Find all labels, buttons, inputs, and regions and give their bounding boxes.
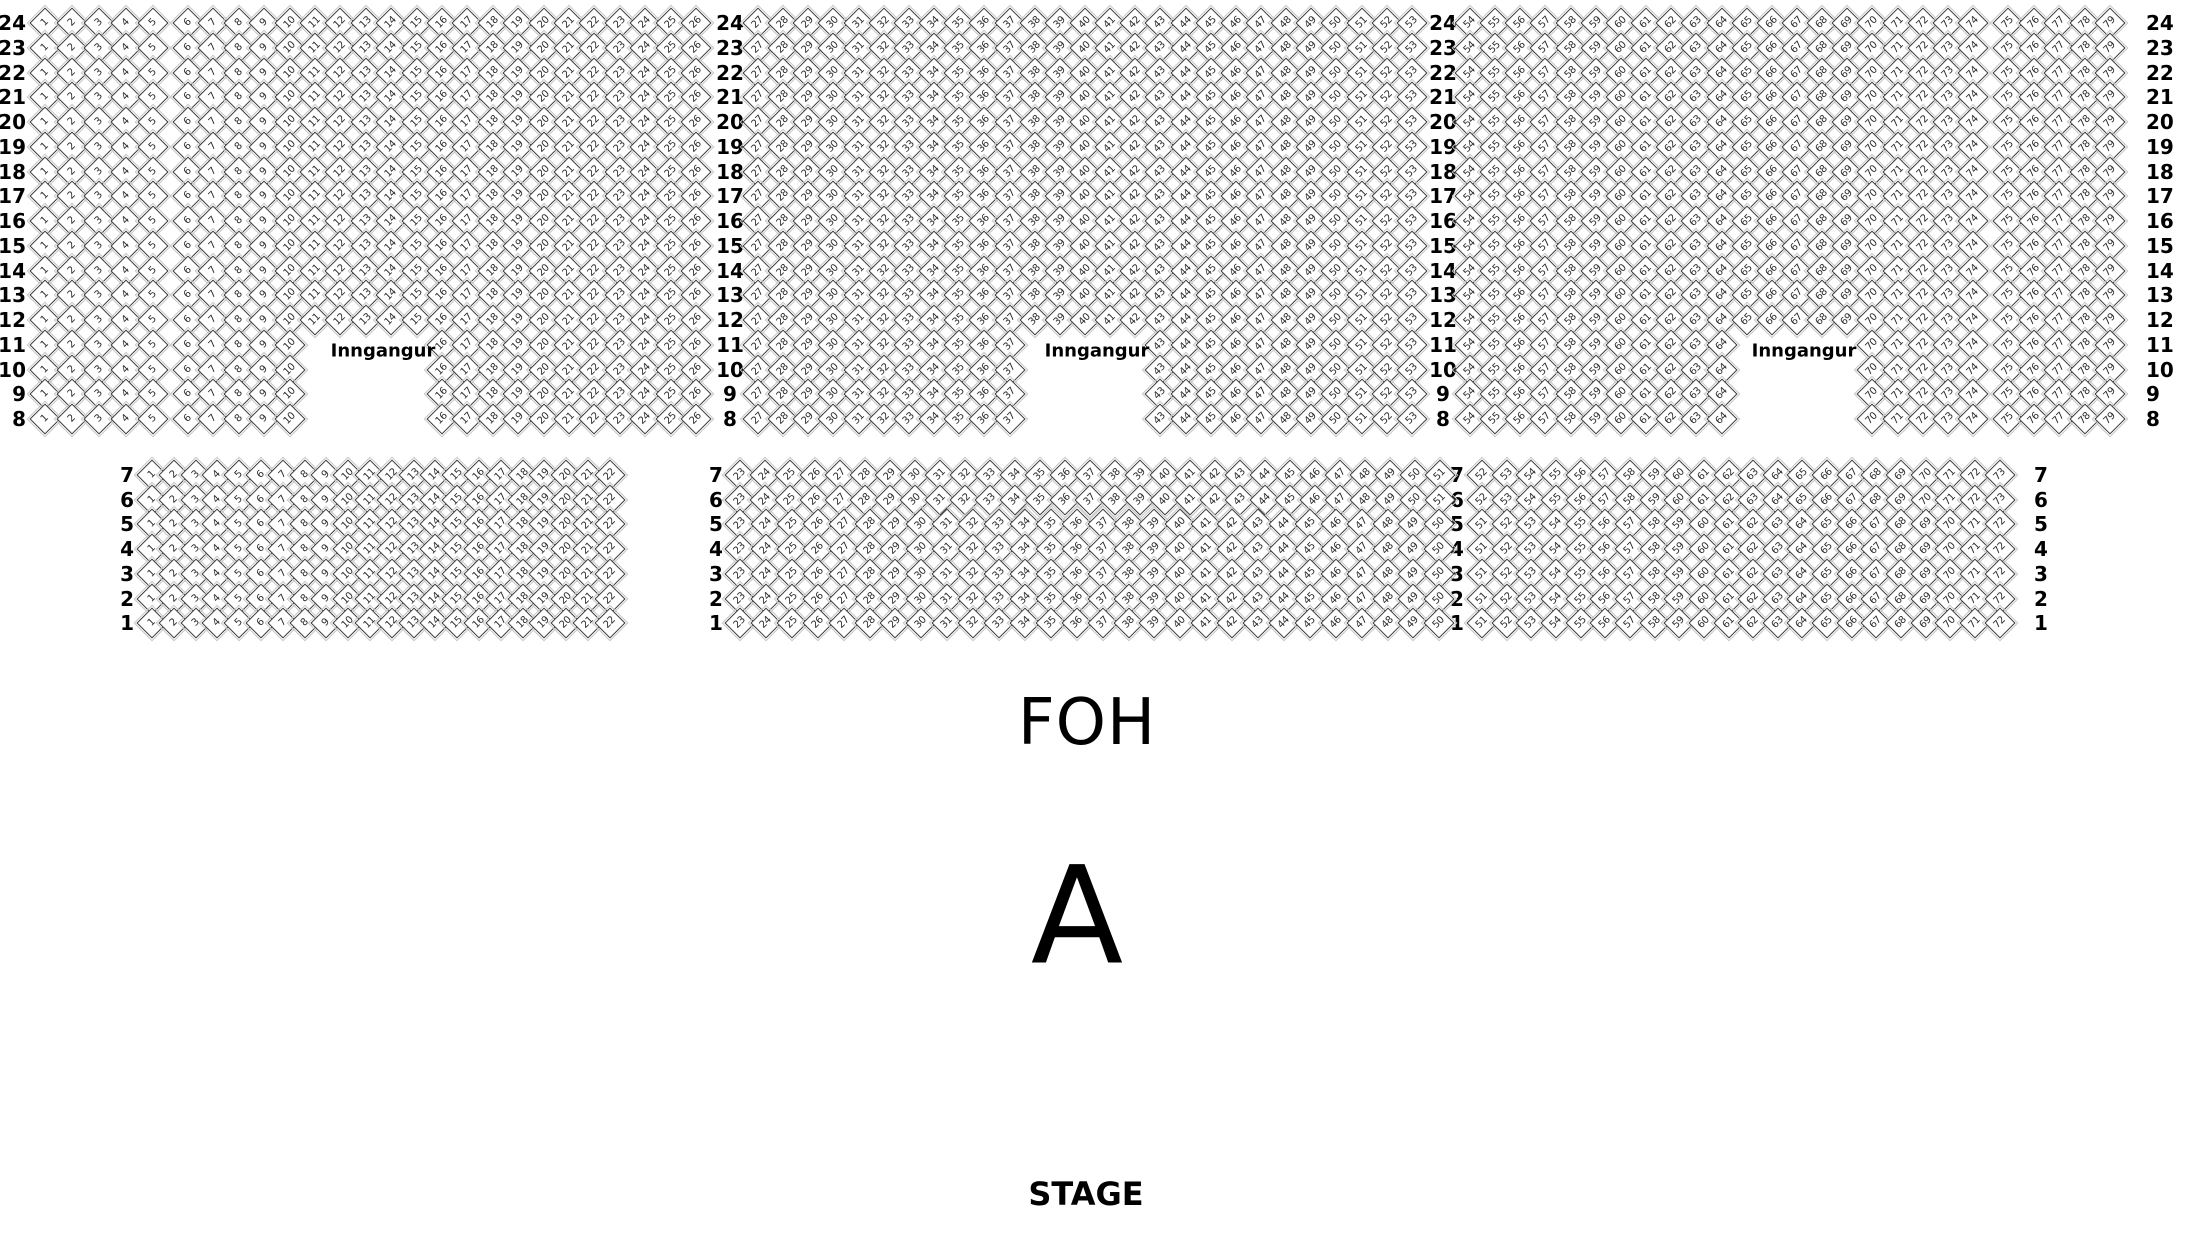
seat-number: 54	[1462, 114, 1477, 129]
seat-number: 8	[233, 265, 244, 276]
seat-number: 64	[1714, 411, 1729, 426]
seat-number: 25	[663, 164, 678, 179]
seat-number: 44	[1178, 238, 1193, 253]
seat-number: 35	[1032, 492, 1047, 507]
seat-number: 70	[1918, 492, 1933, 507]
seat-number: 2	[168, 494, 179, 505]
seat-number: 33	[901, 288, 916, 303]
seat-number: 2	[66, 166, 77, 177]
seat[interactable]: 10	[274, 403, 305, 434]
seat-number: 69	[1840, 114, 1855, 129]
seat-number: 66	[1764, 90, 1779, 105]
seat-number: 54	[1548, 541, 1563, 556]
seat-number: 66	[1764, 238, 1779, 253]
seat-number: 50	[1432, 517, 1447, 532]
seat-number: 35	[951, 387, 966, 402]
seat-number: 56	[1513, 114, 1528, 129]
seat-number: 11	[362, 517, 377, 532]
seat-number: 70	[1865, 387, 1880, 402]
seat-number: 45	[1302, 541, 1317, 556]
seat-number: 56	[1513, 65, 1528, 80]
seat-number: 49	[1382, 467, 1397, 482]
seat-number: 7	[208, 92, 219, 103]
seat-number: 31	[851, 362, 866, 377]
seat[interactable]: 5	[137, 403, 168, 434]
seat-number: 20	[536, 40, 551, 55]
seat-number: 48	[1278, 411, 1293, 426]
seat-number: 25	[663, 362, 678, 377]
seat-number: 53	[1404, 164, 1419, 179]
seat-number: 25	[663, 213, 678, 228]
seat-number: 21	[561, 238, 576, 253]
seat-number: 44	[1276, 591, 1291, 606]
seat-number: 56	[1513, 362, 1528, 377]
seat-number: 4	[212, 568, 223, 579]
seat-number: 69	[1893, 467, 1908, 482]
seat-number: 70	[1865, 90, 1880, 105]
seat-number: 21	[561, 139, 576, 154]
seat-number: 63	[1745, 492, 1760, 507]
seat-number: 54	[1548, 591, 1563, 606]
seat-number: 19	[510, 411, 525, 426]
seat-number: 5	[147, 67, 158, 78]
seat-number: 40	[1077, 312, 1092, 327]
seat-number: 52	[1499, 566, 1514, 581]
seat-number: 70	[1865, 288, 1880, 303]
seat[interactable]: 53	[1396, 403, 1427, 434]
seat-number: 20	[536, 15, 551, 30]
seat-number: 10	[282, 40, 297, 55]
seat[interactable]: 37	[994, 403, 1025, 434]
seat-number: 49	[1304, 213, 1319, 228]
seat-number: 19	[510, 139, 525, 154]
seat-number: 9	[259, 215, 270, 226]
seat[interactable]: 64	[1706, 403, 1737, 434]
seat-number: 48	[1278, 189, 1293, 204]
seat-number: 72	[1915, 312, 1930, 327]
seat-number: 69	[1840, 213, 1855, 228]
seat-number: 8	[233, 141, 244, 152]
seat-number: 47	[1253, 362, 1268, 377]
seat-number: 32	[876, 65, 891, 80]
seat-number: 65	[1739, 238, 1754, 253]
seat-number: 29	[882, 467, 897, 482]
seat-number: 44	[1276, 566, 1291, 581]
seat-number: 66	[1764, 263, 1779, 278]
seat-number: 26	[688, 164, 703, 179]
seat-number: 57	[1538, 90, 1553, 105]
seat-number: 6	[182, 17, 193, 28]
seat-number: 51	[1354, 288, 1369, 303]
seat-number: 10	[282, 65, 297, 80]
seat-number: 20	[536, 288, 551, 303]
seat-number: 12	[333, 164, 348, 179]
seat-number: 56	[1598, 566, 1613, 581]
seat-number: 52	[1379, 288, 1394, 303]
seat-number: 42	[1207, 467, 1222, 482]
seat-number: 60	[1613, 362, 1628, 377]
seat-number: 70	[1865, 362, 1880, 377]
seat-number: 8	[233, 339, 244, 350]
seat-number: 59	[1588, 189, 1603, 204]
seat-number: 23	[612, 139, 627, 154]
seat-number: 69	[1840, 40, 1855, 55]
seat-number: 10	[282, 139, 297, 154]
seat-number: 67	[1844, 492, 1859, 507]
seat-number: 62	[1663, 213, 1678, 228]
seat-number: 58	[1563, 213, 1578, 228]
row-label: 24	[716, 11, 744, 35]
seat-number: 71	[1890, 312, 1905, 327]
seat-number: 64	[1714, 40, 1729, 55]
seat-number: 22	[587, 312, 602, 327]
seat-number: 25	[663, 40, 678, 55]
seat-number: 68	[1814, 312, 1829, 327]
seat-number: 73	[1940, 411, 1955, 426]
seat-number: 34	[926, 164, 941, 179]
seat-number: 27	[836, 541, 851, 556]
seat-number: 20	[536, 90, 551, 105]
seat-number: 19	[510, 114, 525, 129]
seat-number: 4	[120, 215, 131, 226]
seat-number: 41	[1102, 164, 1117, 179]
seat-number: 59	[1588, 40, 1603, 55]
seat-number: 39	[1052, 164, 1067, 179]
seat-number: 55	[1548, 492, 1563, 507]
seat-number: 5	[147, 265, 158, 276]
seat-number: 62	[1663, 90, 1678, 105]
seat-number: 72	[1915, 411, 1930, 426]
seat-number: 12	[384, 517, 399, 532]
seat-number: 59	[1588, 288, 1603, 303]
seat-number: 75	[2000, 164, 2015, 179]
seat-number: 23	[612, 15, 627, 30]
seat-number: 76	[2026, 213, 2041, 228]
seat-number: 34	[926, 387, 941, 402]
seat-number: 31	[932, 492, 947, 507]
seat-number: 71	[1890, 139, 1905, 154]
seat-number: 36	[977, 40, 992, 55]
seat-number: 51	[1354, 139, 1369, 154]
seat-number: 10	[282, 263, 297, 278]
seat-number: 9	[259, 166, 270, 177]
seat-number: 42	[1128, 90, 1143, 105]
seat-number: 67	[1869, 566, 1884, 581]
row-label: 15	[716, 234, 744, 258]
seat-number: 28	[862, 591, 877, 606]
seat-number: 38	[1121, 566, 1136, 581]
seat-number: 26	[688, 65, 703, 80]
seat-number: 28	[775, 139, 790, 154]
seat-number: 50	[1329, 213, 1344, 228]
seat-number: 54	[1524, 492, 1539, 507]
seat-number: 63	[1689, 238, 1704, 253]
seat-number: 74	[1965, 312, 1980, 327]
seat-number: 17	[493, 616, 508, 631]
seat-number: 64	[1795, 591, 1810, 606]
seat-number: 60	[1613, 15, 1628, 30]
seat-number: 50	[1407, 467, 1422, 482]
seat-number: 53	[1404, 362, 1419, 377]
seat-number: 6	[182, 141, 193, 152]
row-label: 15	[2146, 234, 2174, 258]
seat-number: 16	[434, 90, 449, 105]
seat-number: 45	[1203, 288, 1218, 303]
seat-number: 49	[1304, 362, 1319, 377]
seat-number: 72	[1992, 541, 2007, 556]
seat-number: 65	[1739, 139, 1754, 154]
seat-number: 66	[1764, 213, 1779, 228]
seat-number: 72	[1915, 114, 1930, 129]
seat-number: 69	[1893, 492, 1908, 507]
seat-number: 5	[147, 339, 158, 350]
seat-number: 3	[190, 494, 201, 505]
seat-number: 37	[1002, 337, 1017, 352]
seat-number: 65	[1819, 517, 1834, 532]
seat-number: 33	[991, 616, 1006, 631]
seat-number: 51	[1354, 164, 1369, 179]
seat-number: 67	[1789, 189, 1804, 204]
seat-number: 56	[1513, 337, 1528, 352]
seat-number: 32	[965, 591, 980, 606]
seat-number: 8	[233, 92, 244, 103]
seat-number: 12	[333, 213, 348, 228]
seat-number: 19	[510, 387, 525, 402]
seat-number: 10	[282, 337, 297, 352]
seat-number: 68	[1814, 65, 1829, 80]
seat-number: 67	[1789, 238, 1804, 253]
row-label: 12	[1429, 308, 1457, 332]
seat-number: 29	[801, 40, 816, 55]
seat-number: 64	[1795, 616, 1810, 631]
row-label: 8	[1436, 407, 1450, 431]
seat-number: 30	[826, 213, 841, 228]
seat-number: 46	[1228, 213, 1243, 228]
seat-number: 9	[259, 314, 270, 325]
seat-number: 60	[1696, 616, 1711, 631]
seat-number: 23	[612, 362, 627, 377]
seat-number: 15	[409, 312, 424, 327]
seat-number: 52	[1379, 90, 1394, 105]
seat-number: 69	[1840, 164, 1855, 179]
seat-number: 34	[926, 90, 941, 105]
seat-number: 22	[602, 492, 617, 507]
seat-number: 4	[120, 17, 131, 28]
seat-number: 36	[1057, 467, 1072, 482]
seat-number: 16	[434, 387, 449, 402]
seat-number: 5	[147, 215, 158, 226]
seat-number: 65	[1739, 90, 1754, 105]
seat-number: 25	[784, 591, 799, 606]
seat-number: 25	[663, 263, 678, 278]
seat-number: 50	[1329, 288, 1344, 303]
seat-number: 66	[1819, 467, 1834, 482]
seat-number: 50	[1329, 411, 1344, 426]
seat-number: 44	[1276, 616, 1291, 631]
seat-number: 56	[1513, 411, 1528, 426]
seat-number: 58	[1563, 90, 1578, 105]
seat[interactable]: 22	[594, 608, 625, 639]
seat-number: 55	[1487, 40, 1502, 55]
seat-number: 3	[190, 618, 201, 629]
seat-number: 57	[1538, 238, 1553, 253]
seat-number: 63	[1770, 591, 1785, 606]
seat[interactable]: 26	[680, 403, 711, 434]
seat-number: 60	[1613, 189, 1628, 204]
seat-number: 21	[561, 114, 576, 129]
seat-number: 26	[688, 15, 703, 30]
seat-number: 46	[1228, 15, 1243, 30]
seat-number: 36	[977, 139, 992, 154]
seat-number: 51	[1354, 189, 1369, 204]
seat-number: 62	[1663, 411, 1678, 426]
seat-number: 12	[333, 90, 348, 105]
seat-number: 2	[66, 339, 77, 350]
seat-number: 40	[1077, 238, 1092, 253]
seat-number: 34	[926, 213, 941, 228]
seat-number: 46	[1228, 139, 1243, 154]
seat-number: 34	[926, 65, 941, 80]
seat-number: 30	[826, 263, 841, 278]
seat-number: 78	[2077, 288, 2092, 303]
seat[interactable]: 74	[1957, 403, 1988, 434]
seat-number: 20	[558, 517, 573, 532]
seat-number: 26	[688, 312, 703, 327]
seat-number: 38	[1027, 65, 1042, 80]
seat-number: 29	[801, 263, 816, 278]
seat-number: 40	[1077, 189, 1092, 204]
seat-number: 57	[1622, 591, 1637, 606]
seat-number: 17	[460, 164, 475, 179]
seat-number: 73	[1940, 263, 1955, 278]
seat-number: 53	[1524, 591, 1539, 606]
seat-number: 12	[333, 15, 348, 30]
seat-number: 73	[1940, 139, 1955, 154]
seat-number: 30	[826, 15, 841, 30]
seat-number: 23	[612, 189, 627, 204]
seat-number: 52	[1379, 114, 1394, 129]
seat-number: 63	[1689, 40, 1704, 55]
seat-number: 58	[1563, 312, 1578, 327]
seat-number: 77	[2051, 411, 2066, 426]
seat-number: 5	[147, 166, 158, 177]
seat-number: 60	[1613, 65, 1628, 80]
seat-number: 72	[1915, 337, 1930, 352]
seat-number: 50	[1329, 238, 1344, 253]
seat-number: 31	[851, 387, 866, 402]
seat-number: 78	[2077, 164, 2092, 179]
seat-number: 33	[901, 90, 916, 105]
seat-number: 37	[1002, 411, 1017, 426]
seat-number: 16	[434, 164, 449, 179]
seat[interactable]: 72	[1984, 608, 2015, 639]
seat-number: 26	[688, 387, 703, 402]
seat-number: 41	[1198, 591, 1213, 606]
seat-number: 19	[510, 312, 525, 327]
seat-number: 78	[2077, 189, 2092, 204]
seat-number: 72	[1915, 288, 1930, 303]
seat-number: 14	[383, 139, 398, 154]
seat-number: 53	[1404, 387, 1419, 402]
seat-number: 20	[536, 164, 551, 179]
seat-number: 2	[66, 141, 77, 152]
seat-number: 6	[255, 618, 266, 629]
seat-number: 59	[1588, 15, 1603, 30]
seat-number: 2	[168, 568, 179, 579]
seat-number: 60	[1613, 288, 1628, 303]
seat-number: 70	[1865, 411, 1880, 426]
seat-number: 24	[637, 114, 652, 129]
seat-number: 51	[1474, 616, 1489, 631]
seat-number: 47	[1354, 566, 1369, 581]
seat-number: 59	[1588, 164, 1603, 179]
seat-number: 34	[926, 312, 941, 327]
seat-number: 74	[1965, 362, 1980, 377]
seat-number: 18	[485, 263, 500, 278]
seat-number: 63	[1689, 263, 1704, 278]
seat-number: 36	[1069, 541, 1084, 556]
seat-number: 56	[1513, 288, 1528, 303]
seat-number: 55	[1487, 164, 1502, 179]
seat-number: 52	[1379, 213, 1394, 228]
seat-number: 25	[663, 337, 678, 352]
seat-number: 36	[977, 164, 992, 179]
seat-number: 42	[1128, 139, 1143, 154]
seat-number: 27	[750, 114, 765, 129]
row-label: 21	[2146, 85, 2174, 109]
seat-number: 1	[39, 17, 50, 28]
seat-number: 70	[1865, 40, 1880, 55]
seat-number: 66	[1844, 566, 1859, 581]
seat-number: 39	[1052, 189, 1067, 204]
seat-number: 38	[1121, 591, 1136, 606]
seat-number: 43	[1232, 492, 1247, 507]
seat[interactable]: 79	[2094, 403, 2125, 434]
seat-number: 41	[1102, 40, 1117, 55]
seat-number: 49	[1304, 263, 1319, 278]
seat-number: 56	[1598, 616, 1613, 631]
seat-number: 15	[409, 139, 424, 154]
seat-number: 1	[146, 494, 157, 505]
row-label: 10	[0, 358, 26, 382]
seat-number: 4	[120, 265, 131, 276]
seat-number: 11	[307, 189, 322, 204]
seat-number: 48	[1278, 139, 1293, 154]
seat-number: 2	[168, 519, 179, 530]
seat-number: 49	[1382, 492, 1397, 507]
seat-number: 7	[208, 215, 219, 226]
seat-number: 62	[1663, 263, 1678, 278]
row-label: 17	[0, 184, 26, 208]
seat-number: 77	[2051, 288, 2066, 303]
seat-number: 16	[471, 467, 486, 482]
seat-number: 11	[307, 164, 322, 179]
seat-number: 69	[1840, 263, 1855, 278]
seat-number: 13	[358, 65, 373, 80]
seat-number: 73	[1940, 238, 1955, 253]
seat-number: 26	[810, 541, 825, 556]
seat-number: 73	[1940, 114, 1955, 129]
seat-number: 56	[1513, 213, 1528, 228]
seat-number: 51	[1432, 492, 1447, 507]
seat-number: 35	[951, 263, 966, 278]
row-label: 10	[2146, 358, 2174, 382]
seat-number: 57	[1538, 164, 1553, 179]
seat-number: 55	[1487, 139, 1502, 154]
seat-number: 24	[757, 492, 772, 507]
seat-number: 37	[1002, 387, 1017, 402]
seat-number: 55	[1573, 517, 1588, 532]
